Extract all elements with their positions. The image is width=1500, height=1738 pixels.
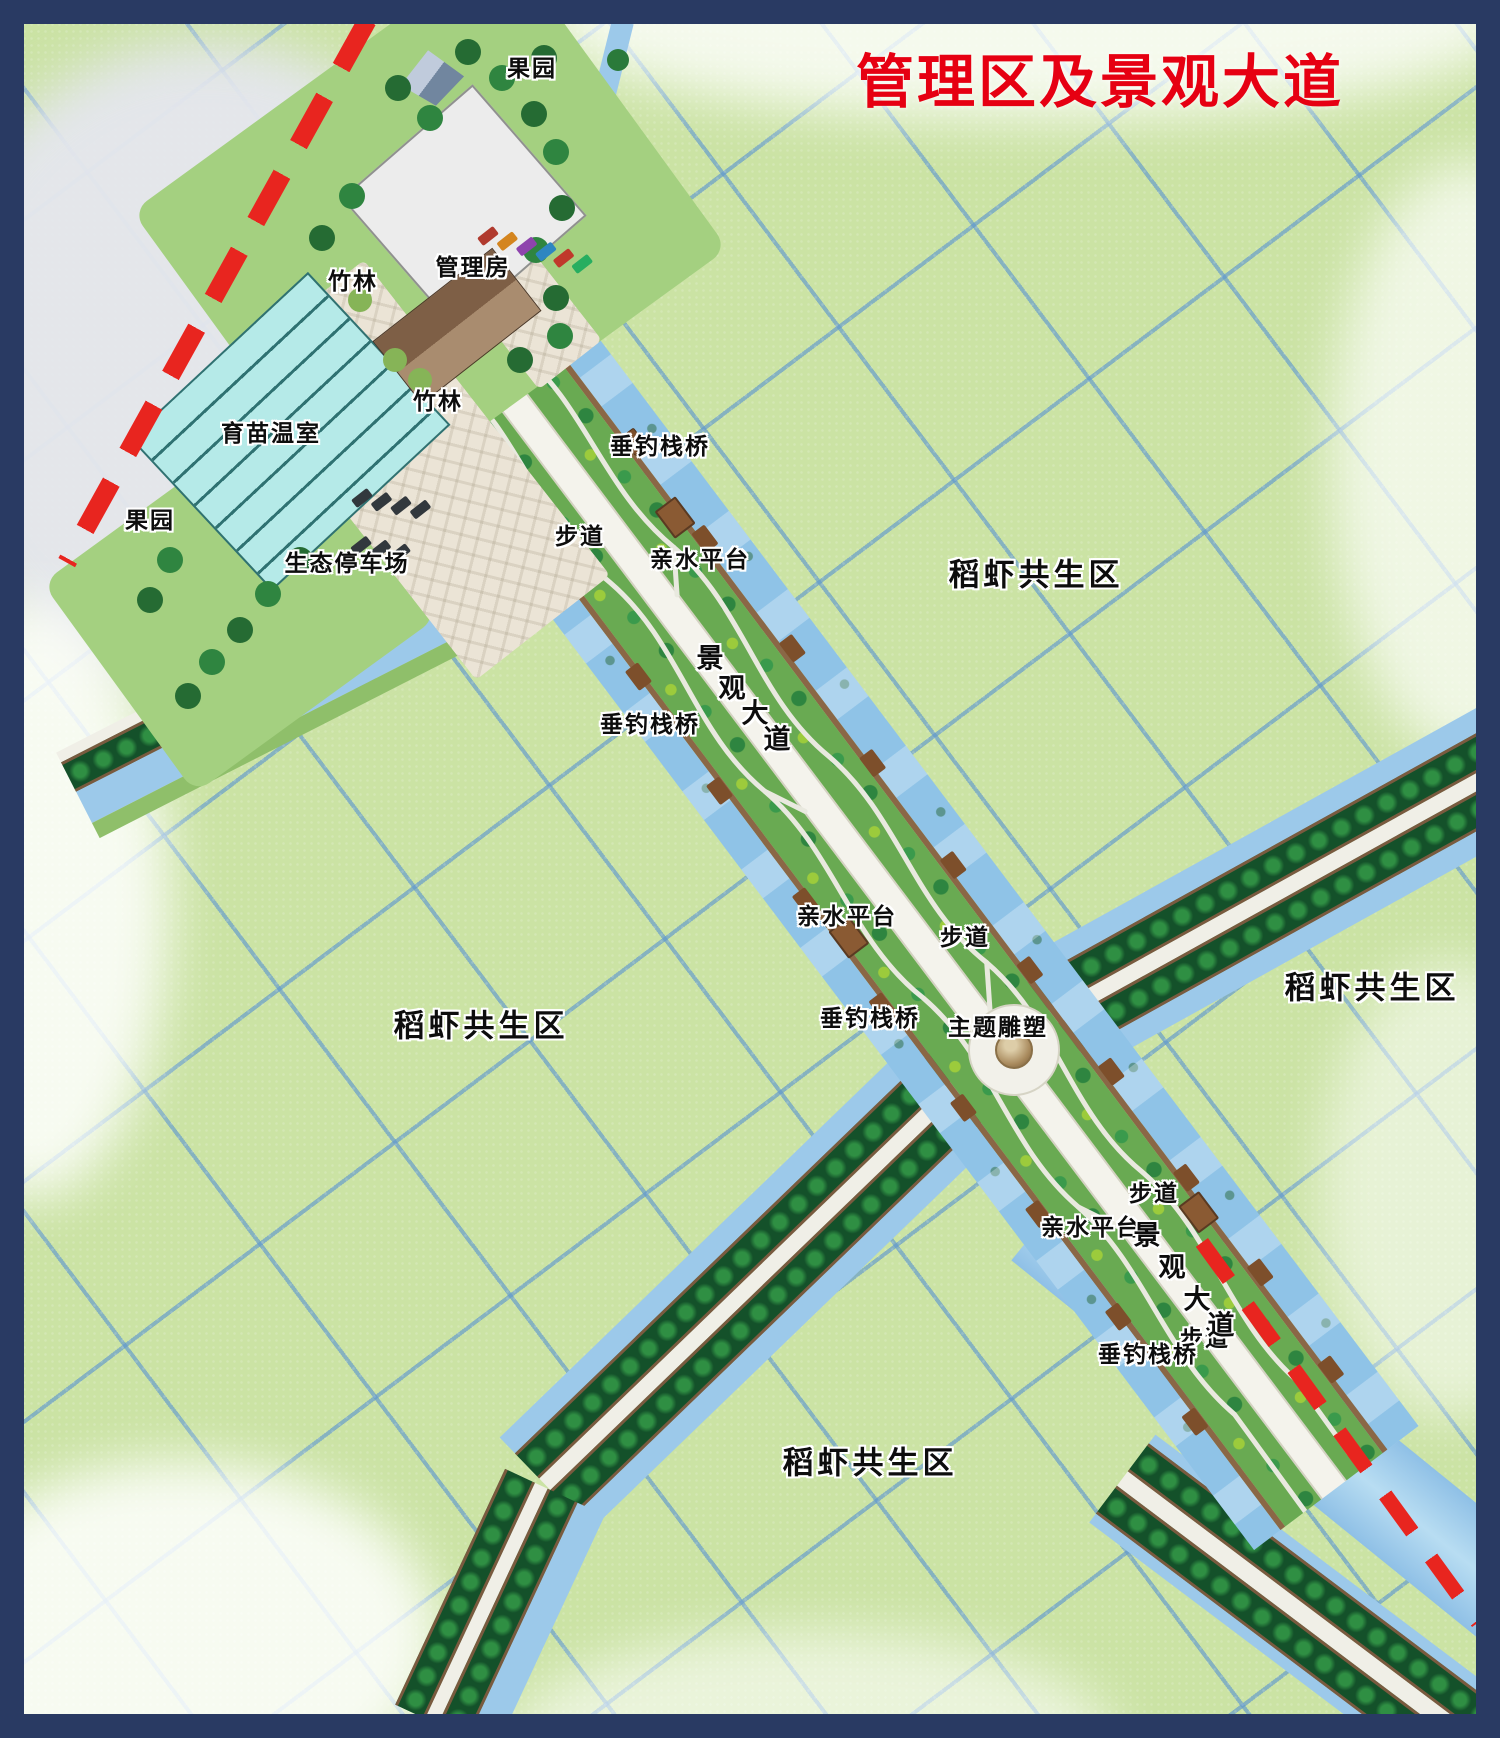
frame-border xyxy=(1476,0,1500,1738)
frame-border xyxy=(0,0,24,1738)
label-footpath-1: 步道 xyxy=(555,517,605,551)
orchard-trees-icon xyxy=(455,39,481,65)
label-fishing-pier-4: 垂钓栈桥 xyxy=(1098,1335,1198,1369)
avenue-name-char: 道 xyxy=(764,718,793,757)
label-orchard-top: 果园 xyxy=(507,49,557,83)
label-theme-sculpture: 主题雕塑 xyxy=(948,1008,1048,1042)
label-footpath-3: 步道 xyxy=(1129,1174,1179,1208)
label-water-platform-3: 亲水平台 xyxy=(1041,1208,1141,1242)
label-fishing-pier-2: 垂钓栈桥 xyxy=(600,705,700,739)
label-nursery-greenhouse: 育苗温室 xyxy=(221,414,321,448)
label-rice-shrimp-east: 稻虾共生区 xyxy=(1285,963,1460,1008)
label-water-platform-1: 亲水平台 xyxy=(650,540,750,574)
label-water-platform-2: 亲水平台 xyxy=(797,897,897,931)
stream-trees-icon xyxy=(607,49,629,71)
frame-border xyxy=(0,0,1500,24)
label-fishing-pier-3: 垂钓栈桥 xyxy=(820,999,920,1033)
label-bamboo-upper: 竹林 xyxy=(328,262,378,296)
page-title: 管理区及景观大道 xyxy=(856,35,1344,119)
label-footpath-2: 步道 xyxy=(940,918,990,952)
label-fishing-pier-1: 垂钓栈桥 xyxy=(610,427,710,461)
frame-border xyxy=(0,1714,1500,1738)
label-rice-shrimp-south: 稻虾共生区 xyxy=(783,1438,958,1483)
site-plan-map: 管理区及景观大道 果园 管理房 竹林 育苗温室 竹林 果园 生态停车场 垂钓栈桥… xyxy=(0,0,1500,1738)
label-bamboo-lower: 竹林 xyxy=(413,382,463,416)
label-eco-parking: 生态停车场 xyxy=(285,544,410,578)
label-orchard-left: 果园 xyxy=(125,501,175,535)
label-management-house: 管理房 xyxy=(436,248,511,282)
avenue-name-char: 道 xyxy=(1208,1304,1237,1343)
label-rice-shrimp-west: 稻虾共生区 xyxy=(394,1001,569,1046)
label-rice-shrimp-ne: 稻虾共生区 xyxy=(949,550,1124,595)
